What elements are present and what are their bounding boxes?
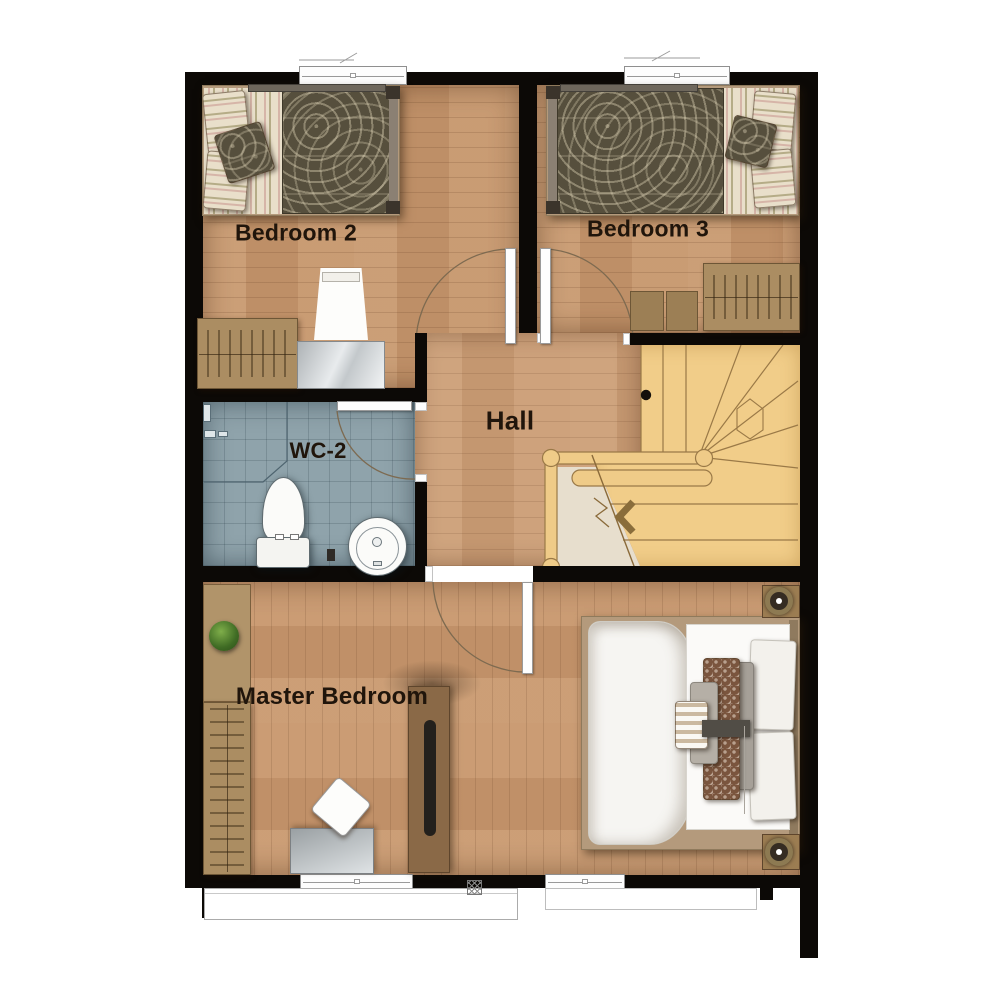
bed-post — [386, 86, 400, 99]
door-jamb — [415, 474, 427, 482]
tv — [424, 720, 436, 836]
room-label-hall: Hall — [486, 406, 534, 437]
bedroom3-bed-duvet — [557, 88, 724, 214]
sheet-seam — [744, 726, 745, 814]
toilet-hinge — [290, 534, 299, 540]
hanger-rail — [709, 275, 795, 320]
wc2-door-leaf — [337, 401, 412, 411]
bedroom3-door-leaf — [540, 248, 551, 344]
bedroom3-wardrobe — [703, 263, 800, 331]
room-label-master: Master Bedroom — [236, 683, 428, 711]
column-hatch — [467, 880, 482, 895]
door-jamb — [415, 402, 427, 411]
pillow-white — [747, 639, 796, 731]
bed-post — [546, 201, 560, 214]
wall-fixture — [218, 431, 228, 437]
pillow-white — [747, 731, 796, 821]
hanger-rail — [210, 706, 245, 870]
wall-wc-right-lower — [415, 482, 427, 566]
window-master-left — [300, 874, 413, 889]
lamp — [765, 587, 793, 615]
bedroom2-bed-rail-side — [389, 92, 398, 206]
sink-faucet — [372, 537, 382, 547]
floor-drain — [327, 549, 335, 561]
lamp — [765, 838, 793, 866]
wall-bedroom3-stair — [630, 333, 818, 345]
master-door-leaf — [522, 582, 533, 674]
wall-bottom — [185, 875, 818, 888]
wall-fixture — [204, 430, 216, 438]
bedroom2-bed-duvet — [282, 88, 395, 214]
window-bedroom3 — [624, 66, 730, 85]
wall-wc-top — [185, 388, 427, 402]
wall-wc-right-upper — [415, 333, 427, 390]
bedroom3-bed-rail-side — [548, 92, 557, 206]
master-wardrobe — [203, 702, 251, 875]
plant — [209, 621, 239, 651]
toilet — [256, 477, 312, 569]
window-bedroom2 — [299, 66, 407, 85]
toilet-hinge — [275, 534, 284, 540]
hanger-rail — [203, 330, 292, 377]
sink — [348, 517, 407, 576]
bedroom3-shelf — [630, 291, 664, 331]
floor-plan: Bedroom 2 Bedroom 3 Hall WC-2 Master Bed… — [0, 0, 1000, 1000]
bedroom3-bed-rail — [560, 84, 698, 92]
master-desk — [290, 828, 374, 874]
bedroom2-bed-rail — [248, 84, 386, 92]
room-label-bedroom3: Bedroom 3 — [587, 216, 709, 243]
bed-post — [386, 201, 400, 214]
awning-outline — [545, 888, 757, 910]
wall-left — [185, 72, 203, 888]
toilet-tank — [256, 537, 310, 568]
bedroom2-chair-back — [322, 272, 360, 282]
wall-bedroom-divider — [519, 85, 537, 333]
bed-runner — [702, 720, 750, 737]
bedroom3-shelf — [666, 291, 698, 331]
wall-master-divider-right — [533, 566, 818, 582]
bedroom2-dresser — [297, 341, 385, 389]
room-label-wc2: WC-2 — [289, 438, 346, 464]
wall-stub-bottom — [760, 888, 773, 900]
door-jamb — [623, 333, 630, 345]
window-master-right — [545, 874, 625, 889]
wall-right — [800, 72, 818, 958]
door-jamb — [425, 566, 433, 582]
sink-drain — [373, 561, 382, 566]
wall-fixture — [203, 404, 211, 422]
bedroom2-door-leaf — [505, 248, 516, 344]
room-label-bedroom2: Bedroom 2 — [235, 220, 357, 247]
bed-post — [546, 86, 560, 99]
bedroom2-wardrobe — [197, 318, 298, 389]
